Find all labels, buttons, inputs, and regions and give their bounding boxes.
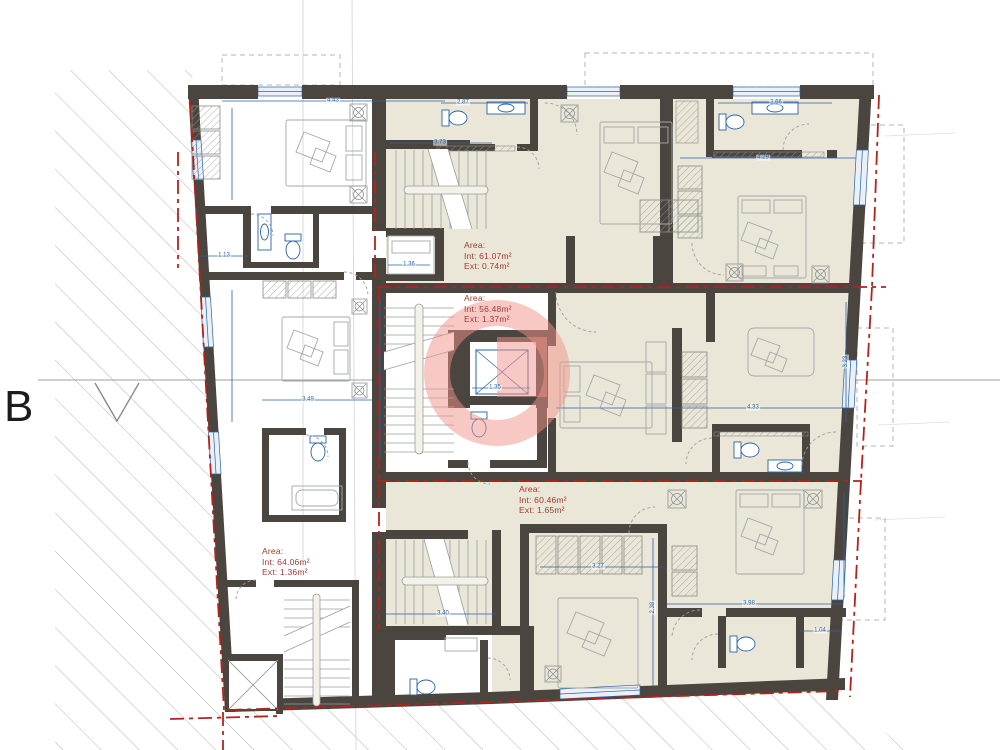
bed [282, 317, 350, 381]
wardrobe [682, 352, 707, 428]
floor-plan-canvas: B Area: Int: 61.07m² Ext: 0.74m² Area: I… [0, 0, 1000, 750]
sink [487, 102, 525, 114]
stair-left-unit [284, 594, 350, 706]
service-shaft [228, 660, 278, 710]
fan-icon [352, 299, 367, 314]
sink [258, 214, 271, 250]
toilet [410, 679, 435, 695]
fan-icon [350, 186, 367, 203]
sink [768, 460, 802, 472]
toilet [442, 110, 467, 126]
wardrobe [192, 106, 220, 179]
toilet [730, 636, 755, 652]
bed [286, 120, 366, 186]
toilet [285, 234, 301, 259]
toilet [734, 442, 759, 458]
wardrobe [263, 281, 336, 298]
toilet [719, 114, 744, 130]
toilet [310, 436, 326, 461]
bathtub [292, 486, 342, 510]
wardrobe [536, 536, 642, 574]
floor-plan-drawing [0, 0, 1000, 750]
wardrobe [678, 166, 702, 238]
closet [388, 236, 434, 274]
sink [752, 102, 798, 114]
